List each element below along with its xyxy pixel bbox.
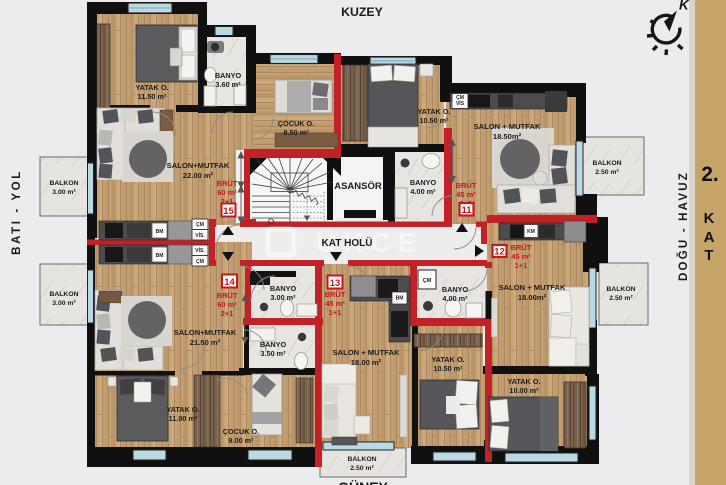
svg-text:ÇM: ÇM [423, 278, 432, 284]
svg-text:SALON+MUTFAK: SALON+MUTFAK [174, 328, 237, 337]
svg-text:BM: BM [156, 229, 164, 235]
svg-text:8.50 m²: 8.50 m² [283, 128, 309, 137]
svg-text:BRÜT: BRÜT [217, 179, 238, 188]
svg-text:BALKON: BALKON [49, 291, 78, 298]
svg-text:2.50 m²: 2.50 m² [350, 465, 374, 472]
svg-text:45 m²: 45 m² [456, 190, 476, 199]
svg-text:KM: KM [527, 229, 535, 235]
svg-text:4.00 m²: 4.00 m² [442, 294, 468, 303]
svg-text:GÜNEY: GÜNEY [338, 479, 388, 485]
svg-text:BANYO: BANYO [410, 178, 437, 187]
svg-text:BALKON: BALKON [606, 286, 635, 293]
svg-text:YATAK O.: YATAK O. [507, 377, 540, 386]
svg-text:BRÜT: BRÜT [511, 243, 532, 252]
svg-text:2.: 2. [701, 163, 719, 186]
svg-text:1+1: 1+1 [329, 308, 342, 317]
svg-text:60 m²: 60 m² [217, 300, 237, 309]
svg-text:BRÜT: BRÜT [456, 181, 477, 190]
svg-text:10.50 m²: 10.50 m² [433, 364, 463, 373]
svg-text:10.50 m²: 10.50 m² [419, 116, 449, 125]
svg-text:3.00 m²: 3.00 m² [270, 293, 296, 302]
svg-text:BALKON: BALKON [49, 180, 78, 187]
svg-text:ASANSÖR: ASANSÖR [334, 181, 382, 192]
svg-text:45 m²: 45 m² [511, 252, 531, 261]
svg-text:BANYO: BANYO [260, 340, 287, 349]
svg-text:BANYO: BANYO [215, 71, 242, 80]
svg-text:T: T [704, 247, 713, 264]
svg-text:13: 13 [330, 278, 341, 289]
svg-text:BRÜT: BRÜT [217, 291, 238, 300]
svg-text:BM: BM [156, 253, 164, 259]
svg-text:14: 14 [224, 277, 235, 288]
svg-text:ÇOCUK O.: ÇOCUK O. [278, 119, 315, 128]
svg-text:BANYO: BANYO [270, 284, 297, 293]
svg-text:YATAK O.: YATAK O. [417, 107, 450, 116]
svg-text:ÇOCUK O.: ÇOCUK O. [223, 427, 260, 436]
svg-text:VİS: VİS [456, 100, 465, 107]
svg-text:ÇM: ÇM [196, 222, 204, 228]
svg-text:4.00 m²: 4.00 m² [410, 187, 436, 196]
svg-text:SALON + MUTFAK: SALON + MUTFAK [333, 348, 400, 357]
svg-text:12: 12 [494, 247, 505, 258]
svg-text:3.50 m²: 3.50 m² [260, 349, 286, 358]
svg-text:15: 15 [223, 206, 234, 217]
svg-text:BANYO: BANYO [442, 285, 469, 294]
svg-text:2.50 m²: 2.50 m² [609, 295, 633, 302]
svg-text:9.00 m²: 9.00 m² [228, 436, 254, 445]
svg-text:60 m²: 60 m² [217, 188, 237, 197]
svg-text:SALON + MUTFAK: SALON + MUTFAK [474, 122, 541, 131]
svg-text:18.00m²: 18.00m² [518, 293, 547, 302]
svg-text:22.00 m²: 22.00 m² [183, 171, 214, 180]
svg-text:10.00 m²: 10.00 m² [509, 386, 539, 395]
svg-text:11.00 m²: 11.00 m² [169, 414, 198, 423]
svg-text:YATAK O.: YATAK O. [166, 405, 199, 414]
svg-text:BM: BM [396, 296, 404, 302]
svg-text:ÇM: ÇM [196, 259, 204, 265]
svg-text:KUZEY: KUZEY [341, 5, 383, 19]
svg-text:3.00 m²: 3.00 m² [52, 189, 76, 196]
svg-text:VİS.: VİS. [195, 247, 205, 254]
svg-text:BRÜT: BRÜT [325, 290, 346, 299]
svg-text:A: A [704, 229, 715, 246]
svg-text:3.60 m²: 3.60 m² [215, 80, 241, 89]
svg-text:2.50 m²: 2.50 m² [595, 169, 619, 176]
svg-text:18.00 m²: 18.00 m² [351, 358, 382, 367]
svg-text:YATAK O.: YATAK O. [135, 83, 168, 92]
svg-text:11.50 m²: 11.50 m² [138, 92, 167, 101]
svg-text:BATI - YOL: BATI - YOL [11, 169, 23, 255]
svg-text:21.50 m²: 21.50 m² [190, 338, 221, 347]
svg-text:K: K [704, 210, 715, 227]
svg-text:1+1: 1+1 [515, 261, 528, 270]
svg-text:3.00 m²: 3.00 m² [52, 300, 76, 307]
svg-text:BALKON: BALKON [347, 456, 376, 463]
svg-text:18.50m²: 18.50m² [493, 132, 522, 141]
svg-text:2+1: 2+1 [221, 309, 234, 318]
svg-text:K: K [679, 0, 690, 13]
svg-text:KAT HOLÜ: KAT HOLÜ [322, 236, 373, 249]
svg-text:VİS.: VİS. [195, 232, 205, 239]
svg-text:YATAK O.: YATAK O. [431, 355, 464, 364]
svg-text:BALKON: BALKON [592, 160, 621, 167]
svg-text:45 m²: 45 m² [325, 299, 345, 308]
svg-text:11: 11 [461, 205, 472, 216]
svg-text:SALON + MUTFAK: SALON + MUTFAK [499, 283, 566, 292]
svg-text:SALON+MUTFAK: SALON+MUTFAK [167, 161, 230, 170]
svg-text:DOĞU - HAVUZ: DOĞU - HAVUZ [677, 171, 690, 281]
